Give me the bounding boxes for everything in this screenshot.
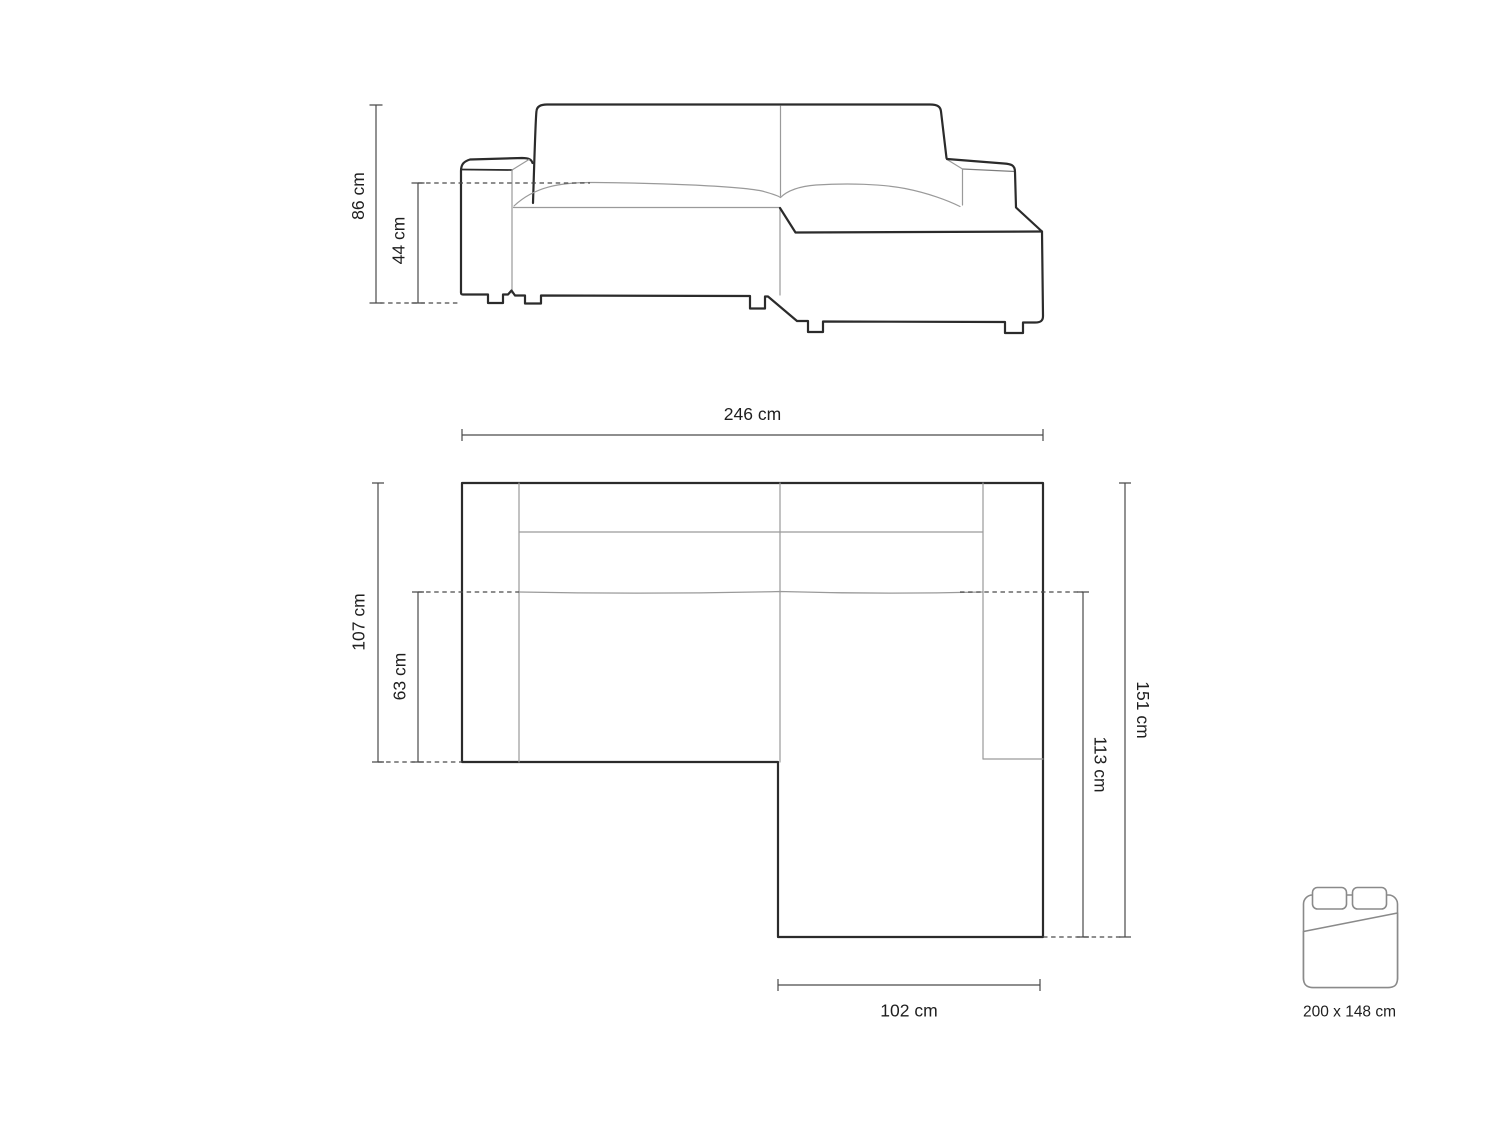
- dimension-label-seat-depth: 63 cm: [390, 653, 410, 701]
- front-view-drawing: [461, 105, 1043, 334]
- left-armrest-outline: [461, 158, 533, 292]
- front-view-dimensions: 86 cm 44 cm: [348, 105, 590, 303]
- dimension-label-right-length: 151 cm: [1133, 681, 1153, 738]
- plan-outline: [462, 483, 1043, 937]
- dimension-label-width-total: 246 cm: [724, 404, 781, 424]
- sofa-dimensions-diagram: 86 cm 44 cm 246 cm 107 cm 63 cm 151 cm: [0, 0, 1500, 1125]
- chaise-top-edge: [780, 208, 1042, 233]
- right-cushion-curve: [781, 184, 961, 206]
- dimension-label-depth-total: 107 cm: [349, 593, 369, 650]
- dimension-label-chaise-length: 113 cm: [1090, 736, 1110, 792]
- top-view-drawing: [462, 483, 1043, 937]
- right-armrest-front-top-edge: [963, 169, 1016, 172]
- left-armrest-top-face-edge: [512, 160, 529, 171]
- sofa-dimension-diagram-page: 86 cm 44 cm 246 cm 107 cm 63 cm 151 cm: [0, 0, 1500, 1125]
- dimension-label-seat-height: 44 cm: [389, 217, 409, 265]
- bed-icon: 200 x 148 cm: [1303, 888, 1398, 1021]
- left-armrest-front-top-edge: [461, 170, 512, 171]
- bed-pillow-right: [1353, 888, 1387, 910]
- base-bottom-contour: [461, 159, 1043, 333]
- dimension-label-height-total: 86 cm: [348, 172, 368, 220]
- dimension-label-chaise-width: 102 cm: [880, 1001, 937, 1021]
- left-cushion-curve: [514, 182, 781, 206]
- sleeping-area-size-label: 200 x 148 cm: [1303, 1004, 1396, 1021]
- bed-pillow-left: [1313, 888, 1347, 910]
